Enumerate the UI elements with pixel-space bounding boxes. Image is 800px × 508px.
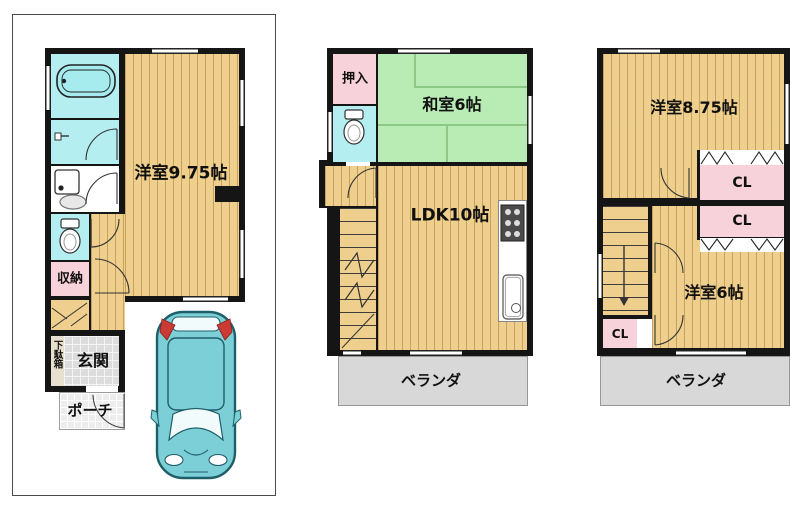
window [45,66,51,110]
window [527,96,533,144]
stairs-break-icon [340,208,376,350]
folding-door-icon [700,238,784,252]
sink-icon [502,274,524,320]
door-arc-icon [654,314,684,346]
door-arc-icon [85,172,118,205]
door-arc-icon [85,128,118,161]
door-arc-icon [654,242,684,274]
3f-hall [652,206,697,240]
room-label: 押入 [342,73,368,86]
room-label: 洋室8.75帖 [650,100,737,116]
car-top-view [150,310,242,480]
room-label: 玄関 [77,353,109,369]
door-arc-icon [90,218,120,248]
stairs-down-arrow-icon [617,245,631,307]
tatami-line [446,124,448,162]
floor-plan-page: { "document": { "kind": "residential flo… [0,0,800,508]
room-label: 洋室9.75帖 [135,166,228,183]
room-label: CL [732,176,751,190]
window [239,80,245,126]
tatami-line [414,86,527,88]
room-label: CL [732,214,751,228]
wash-basin-icon [58,194,88,210]
door-arc-icon [94,258,130,294]
window [327,112,333,152]
room-label: 下駄箱 [52,340,62,369]
window [152,48,198,54]
bathtub-icon [55,60,117,102]
stairs-lines-icon [51,300,89,330]
toilet-icon [341,109,367,147]
stove-icon [500,204,525,242]
room-label: 収納 [57,273,83,286]
room-label: ベランダ [666,374,726,389]
door-arc-icon [347,167,377,199]
window [239,230,245,278]
folding-door-icon [700,150,784,165]
room-label: ポーチ [67,404,112,419]
room-label: 洋室6帖 [684,285,743,301]
window [618,48,660,54]
window [597,254,603,298]
door-arc-icon [660,167,690,199]
room-label: ベランダ [401,374,461,389]
window [398,48,450,54]
toilet-icon [57,218,83,256]
room-label: CL [612,328,628,340]
1f-wall-pier [215,186,245,202]
3f-wall-hall [597,198,660,205]
room-label: LDK10帖 [411,208,490,225]
washer-pan-icon [54,169,80,195]
tatami-line [378,124,527,126]
faucet-icon [54,128,70,144]
window [784,84,790,144]
tatami-line [414,54,416,88]
room-label: 和室6帖 [422,97,481,113]
3f-cl3-door-gap [637,319,652,348]
window [183,296,228,302]
